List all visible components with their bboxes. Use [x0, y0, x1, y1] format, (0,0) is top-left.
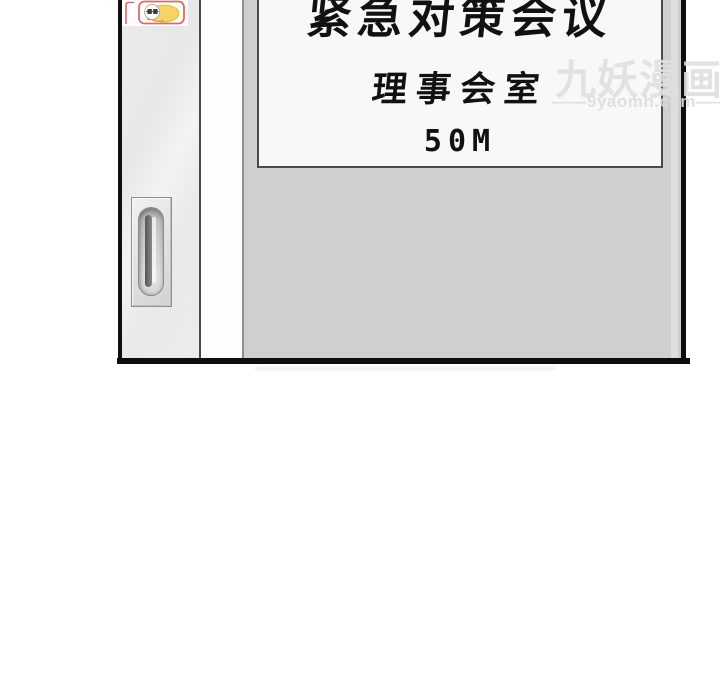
door-handle-grip [145, 215, 152, 287]
door-handle-grip-highlight [152, 217, 156, 283]
sign-distance-label: 50M [424, 124, 496, 160]
floor-shadow [255, 367, 555, 370]
sign-room-label: 理事会室 [370, 68, 551, 112]
door-handle [131, 197, 172, 307]
panel-bottom-frame-line [117, 358, 690, 364]
wall-light-strip [671, 0, 678, 358]
notice-sign: 紧急对策会议 理事会室 50M [257, 0, 663, 168]
doorway-gap [201, 0, 242, 358]
door-handle-recess [138, 207, 164, 296]
mascot-sticker [122, 0, 188, 26]
mascot-logo-icon [122, 0, 188, 26]
panel-right-frame-line [681, 0, 686, 364]
panel-left-frame-line [118, 0, 122, 364]
sign-title: 紧急对策会议 [304, 0, 616, 46]
comic-panel-scene: 紧急对策会议 理事会室 50M 九妖漫画 ——9yaomh.com—— [0, 0, 720, 700]
